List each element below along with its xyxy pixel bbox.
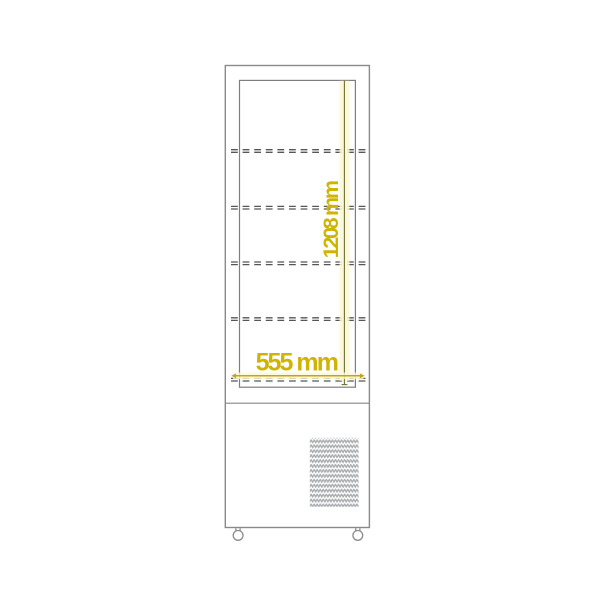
svg-text:555 mm: 555 mm [256,348,338,376]
svg-text:1208 mm: 1208 mm [319,181,343,258]
